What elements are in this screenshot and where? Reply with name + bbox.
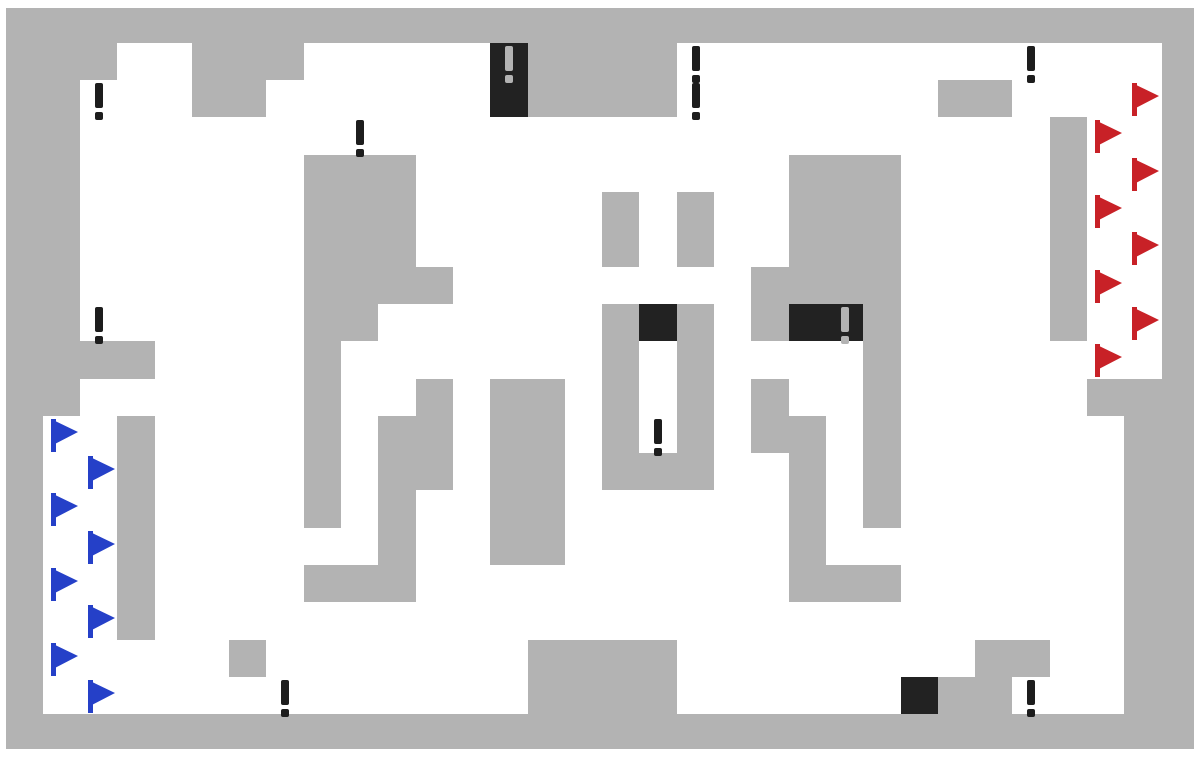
wall-tile [5, 6, 43, 43]
wall-tile [378, 565, 416, 602]
wall-tile [192, 80, 229, 117]
wall-tile [341, 6, 378, 43]
wall-tile [43, 229, 80, 267]
wall-tile [863, 229, 901, 267]
wall-tile [602, 43, 639, 80]
wall-tile [341, 267, 378, 304]
wall-tile [528, 416, 565, 453]
wall-tile [789, 155, 826, 192]
wall-tile [5, 602, 43, 640]
wall-tile [192, 6, 229, 43]
wall-tile [677, 714, 714, 752]
wall-tile [1124, 714, 1162, 752]
wall-tile [1087, 714, 1124, 752]
wall-tile [5, 267, 43, 304]
wall-tile [155, 6, 192, 43]
wall-tile [192, 714, 229, 752]
wall-tile [528, 677, 565, 714]
wall-tile [43, 304, 80, 341]
wall-tile [453, 6, 490, 43]
wall-tile [304, 453, 341, 490]
exclamation-mark-dot [505, 75, 513, 83]
wall-tile [528, 453, 565, 490]
wall-tile [863, 453, 901, 490]
wall-tile [714, 714, 751, 752]
wall-tile [863, 267, 901, 304]
wall-tile [789, 229, 826, 267]
wall-tile [863, 155, 901, 192]
wall-tile [5, 490, 43, 528]
wall-tile [789, 565, 826, 602]
wall-tile [1050, 6, 1087, 43]
wall-tile [304, 155, 341, 192]
wall-tile [789, 490, 826, 528]
wall-tile [5, 192, 43, 229]
wall-tile [378, 490, 416, 528]
red-flag-icon[interactable] [1095, 120, 1122, 147]
wall-tile [192, 43, 229, 80]
wall-tile [378, 528, 416, 565]
wall-tile [266, 43, 304, 80]
wall-tile [341, 192, 378, 229]
wall-tile [714, 6, 751, 43]
blue-flag-icon[interactable] [88, 531, 115, 558]
exclamation-mark-icon[interactable] [356, 120, 364, 145]
wall-tile [1124, 416, 1162, 453]
wall-tile [639, 453, 677, 490]
wall-tile [43, 267, 80, 304]
exclamation-mark-dot [654, 448, 662, 456]
wall-tile [751, 379, 789, 416]
wall-tile [378, 453, 416, 490]
wall-tile [1124, 640, 1162, 677]
wall-tile [1050, 155, 1087, 192]
wall-tile [416, 453, 453, 490]
wall-tile [117, 341, 155, 379]
wall-tile [789, 453, 826, 490]
blue-flag-icon[interactable] [88, 605, 115, 632]
wall-tile [155, 714, 192, 752]
wall-tile [639, 714, 677, 752]
wall-tile [826, 155, 863, 192]
wall-tile [5, 565, 43, 602]
wall-tile [565, 43, 602, 80]
wall-tile [677, 6, 714, 43]
wall-tile [975, 677, 1012, 714]
wall-tile [490, 416, 528, 453]
wall-tile [639, 43, 677, 80]
wall-tile [863, 341, 901, 379]
wall-tile [938, 714, 975, 752]
wall-tile [789, 714, 826, 752]
exclamation-mark-dot [95, 112, 103, 120]
wall-tile [1124, 565, 1162, 602]
wall-tile [378, 416, 416, 453]
wall-tile [1050, 714, 1087, 752]
wall-tile [229, 6, 266, 43]
exclamation-mark-icon[interactable] [1027, 680, 1035, 705]
wall-tile [863, 714, 901, 752]
red-flag-icon[interactable] [1095, 270, 1122, 297]
wall-tile [826, 267, 863, 304]
wall-tile [378, 267, 416, 304]
wall-tile [229, 80, 266, 117]
black-tile[interactable] [901, 677, 938, 714]
wall-tile [863, 490, 901, 528]
exclamation-mark-icon[interactable] [1027, 46, 1035, 71]
blue-flag-icon[interactable] [51, 643, 78, 670]
wall-tile [43, 155, 80, 192]
wall-tile [677, 379, 714, 416]
red-flag-icon[interactable] [1132, 158, 1159, 185]
exclamation-mark-dot [1027, 75, 1035, 83]
wall-tile [117, 6, 155, 43]
wall-tile [1012, 6, 1050, 43]
exclamation-mark-dot [841, 336, 849, 344]
wall-tile [789, 6, 826, 43]
wall-tile [1124, 528, 1162, 565]
wall-tile [1012, 714, 1050, 752]
wall-tile [975, 640, 1012, 677]
wall-tile [378, 714, 416, 752]
wall-tile [528, 379, 565, 416]
wall-tile [602, 640, 639, 677]
exclamation-mark-icon[interactable] [281, 680, 289, 705]
wall-tile [602, 341, 639, 379]
wall-tile [1124, 677, 1162, 714]
wall-tile [901, 6, 938, 43]
wall-tile [304, 714, 341, 752]
wall-tile [938, 677, 975, 714]
wall-tile [304, 416, 341, 453]
wall-tile [602, 80, 639, 117]
wall-tile [751, 6, 789, 43]
wall-tile [1050, 267, 1087, 304]
wall-tile [378, 229, 416, 267]
exclamation-mark-dot [281, 709, 289, 717]
game-map [0, 0, 1200, 757]
exclamation-mark-dot [692, 75, 700, 83]
wall-tile [341, 565, 378, 602]
wall-tile [117, 714, 155, 752]
wall-tile [378, 6, 416, 43]
margin-bottom [0, 749, 1200, 757]
wall-tile [43, 341, 80, 379]
blue-flag-icon[interactable] [51, 493, 78, 520]
wall-tile [751, 267, 789, 304]
wall-tile [416, 379, 453, 416]
red-flag-icon[interactable] [1095, 195, 1122, 222]
wall-tile [304, 267, 341, 304]
wall-tile [528, 490, 565, 528]
exclamation-mark-icon[interactable] [692, 83, 700, 108]
wall-tile [863, 192, 901, 229]
wall-tile [117, 602, 155, 640]
wall-tile [80, 341, 117, 379]
wall-tile [5, 416, 43, 453]
wall-tile [789, 528, 826, 565]
wall-tile [304, 341, 341, 379]
wall-tile [490, 6, 528, 43]
wall-tile [1050, 229, 1087, 267]
exclamation-mark-icon[interactable] [95, 83, 103, 108]
wall-tile [639, 640, 677, 677]
wall-tile [1124, 453, 1162, 490]
wall-tile [789, 267, 826, 304]
wall-tile [453, 714, 490, 752]
red-flag-icon[interactable] [1095, 344, 1122, 371]
wall-tile [1124, 6, 1162, 43]
wall-tile [938, 6, 975, 43]
wall-tile [863, 304, 901, 341]
wall-tile [117, 416, 155, 453]
wall-tile [938, 80, 975, 117]
wall-tile [416, 416, 453, 453]
wall-tile [5, 80, 43, 117]
wall-tile [5, 453, 43, 490]
blue-flag-icon[interactable] [51, 568, 78, 595]
wall-tile [677, 229, 714, 267]
exclamation-mark-dot [95, 336, 103, 344]
wall-tile [266, 714, 304, 752]
wall-tile [43, 117, 80, 155]
wall-tile [639, 677, 677, 714]
black-tile[interactable] [789, 304, 826, 341]
blue-flag-icon[interactable] [88, 456, 115, 483]
wall-tile [602, 453, 639, 490]
wall-tile [677, 416, 714, 453]
wall-tile [528, 640, 565, 677]
wall-tile [304, 6, 341, 43]
wall-tile [266, 6, 304, 43]
wall-tile [1012, 640, 1050, 677]
black-tile[interactable] [639, 304, 677, 341]
wall-tile [975, 80, 1012, 117]
wall-tile [602, 192, 639, 229]
exclamation-mark-icon[interactable] [841, 307, 849, 332]
wall-tile [602, 714, 639, 752]
wall-tile [789, 416, 826, 453]
wall-tile [602, 416, 639, 453]
wall-tile [43, 6, 80, 43]
wall-tile [341, 229, 378, 267]
exclamation-mark-icon[interactable] [654, 419, 662, 444]
wall-tile [1124, 490, 1162, 528]
wall-tile [5, 229, 43, 267]
exclamation-mark-dot [692, 112, 700, 120]
wall-tile [5, 341, 43, 379]
wall-tile [341, 714, 378, 752]
wall-tile [826, 6, 863, 43]
wall-tile [751, 416, 789, 453]
wall-tile [416, 714, 453, 752]
exclamation-mark-icon[interactable] [505, 46, 513, 71]
wall-tile [490, 714, 528, 752]
exclamation-mark-icon[interactable] [95, 307, 103, 332]
wall-tile [565, 714, 602, 752]
wall-tile [602, 6, 639, 43]
wall-tile [43, 192, 80, 229]
wall-tile [602, 677, 639, 714]
wall-tile [1050, 304, 1087, 341]
wall-tile [528, 6, 565, 43]
wall-tile [751, 714, 789, 752]
blue-flag-icon[interactable] [51, 419, 78, 446]
wall-tile [863, 416, 901, 453]
wall-tile [602, 304, 639, 341]
wall-tile [304, 304, 341, 341]
wall-tile [5, 155, 43, 192]
wall-tile [677, 341, 714, 379]
wall-tile [789, 192, 826, 229]
red-flag-icon[interactable] [1132, 307, 1159, 334]
wall-tile [5, 677, 43, 714]
wall-tile [863, 565, 901, 602]
wall-tile [5, 379, 43, 416]
wall-tile [117, 528, 155, 565]
exclamation-mark-icon[interactable] [692, 46, 700, 71]
wall-tile [5, 714, 43, 752]
wall-tile [304, 192, 341, 229]
wall-tile [304, 229, 341, 267]
red-flag-icon[interactable] [1132, 83, 1159, 110]
wall-tile [528, 80, 565, 117]
wall-tile [751, 304, 789, 341]
wall-tile [1050, 192, 1087, 229]
wall-tile [1087, 6, 1124, 43]
wall-tile [43, 714, 80, 752]
wall-tile [565, 640, 602, 677]
wall-tile [341, 155, 378, 192]
wall-tile [117, 565, 155, 602]
wall-tile [826, 714, 863, 752]
wall-tile [304, 490, 341, 528]
wall-tile [378, 192, 416, 229]
wall-tile [5, 43, 43, 80]
wall-tile [1124, 379, 1162, 416]
margin-right [1194, 0, 1200, 757]
margin-left [0, 0, 6, 757]
wall-tile [416, 6, 453, 43]
wall-tile [43, 80, 80, 117]
wall-tile [901, 714, 938, 752]
wall-tile [565, 80, 602, 117]
blue-flag-icon[interactable] [88, 680, 115, 707]
wall-tile [117, 453, 155, 490]
exclamation-mark-dot [1027, 709, 1035, 717]
wall-tile [863, 6, 901, 43]
wall-tile [5, 117, 43, 155]
wall-tile [1050, 117, 1087, 155]
wall-tile [975, 714, 1012, 752]
wall-tile [341, 304, 378, 341]
wall-tile [826, 192, 863, 229]
wall-tile [1087, 379, 1124, 416]
wall-tile [528, 714, 565, 752]
wall-tile [602, 379, 639, 416]
wall-tile [80, 714, 117, 752]
wall-tile [677, 453, 714, 490]
wall-tile [80, 6, 117, 43]
wall-tile [565, 6, 602, 43]
wall-tile [5, 304, 43, 341]
wall-tile [490, 379, 528, 416]
wall-tile [43, 43, 80, 80]
wall-tile [304, 565, 341, 602]
wall-tile [229, 640, 266, 677]
wall-tile [565, 677, 602, 714]
wall-tile [80, 43, 117, 80]
wall-tile [826, 229, 863, 267]
wall-tile [528, 43, 565, 80]
wall-tile [677, 304, 714, 341]
wall-tile [43, 379, 80, 416]
wall-tile [229, 43, 266, 80]
wall-tile [5, 528, 43, 565]
wall-tile [975, 6, 1012, 43]
wall-tile [528, 528, 565, 565]
wall-tile [639, 6, 677, 43]
wall-tile [416, 267, 453, 304]
exclamation-mark-dot [356, 149, 364, 157]
wall-tile [229, 714, 266, 752]
wall-tile [639, 80, 677, 117]
wall-tile [378, 155, 416, 192]
wall-tile [863, 379, 901, 416]
wall-tile [677, 192, 714, 229]
wall-tile [117, 490, 155, 528]
black-tile[interactable] [490, 80, 528, 117]
red-flag-icon[interactable] [1132, 232, 1159, 259]
margin-top [0, 0, 1200, 8]
wall-tile [304, 379, 341, 416]
wall-tile [490, 453, 528, 490]
wall-tile [490, 528, 528, 565]
wall-tile [1124, 602, 1162, 640]
wall-tile [5, 640, 43, 677]
wall-tile [490, 490, 528, 528]
wall-tile [602, 229, 639, 267]
wall-tile [826, 565, 863, 602]
